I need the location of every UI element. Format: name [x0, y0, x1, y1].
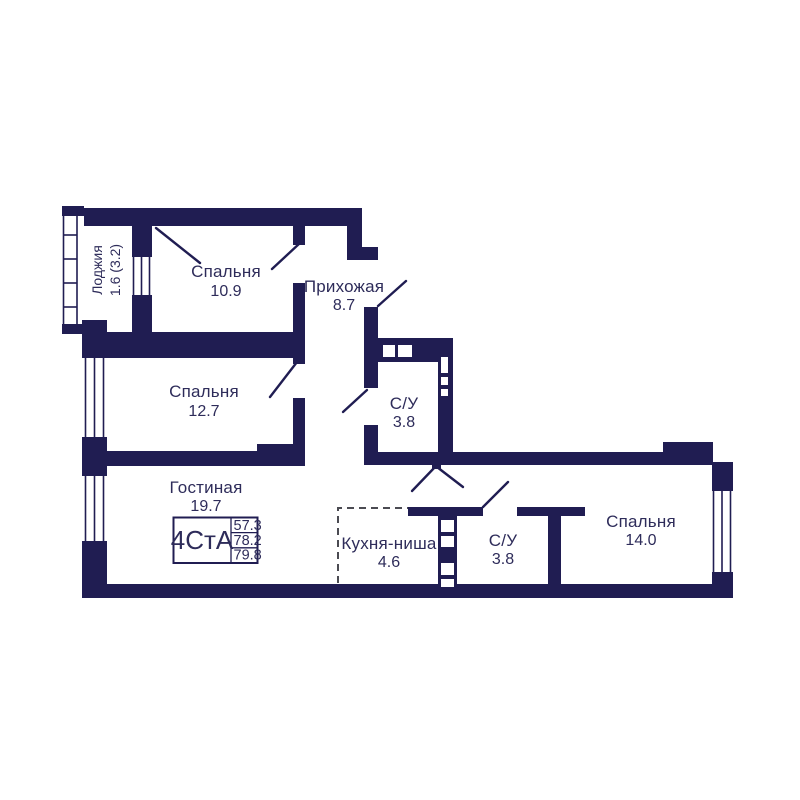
room-area: 3.8 [393, 414, 415, 431]
room-name: Спальня [169, 382, 239, 401]
wall-right-upper [712, 462, 733, 491]
glazing-cap [62, 206, 84, 216]
wall-partition-living-block [257, 444, 305, 466]
unit-type-label: 4СтА [171, 525, 234, 555]
loggia-glazing [62, 206, 84, 334]
room-label-bedroom3: Спальня 14.0 [606, 512, 676, 549]
floor-plan-page: Лоджия 1.6 (3.2) Спальня 10.9 Прихожая 8… [0, 0, 800, 800]
wall-hall-right-upper [347, 226, 362, 260]
room-area: 14.0 [625, 532, 656, 549]
window-bedroom2 [86, 357, 104, 437]
unit-info-box: 4СтА 57.3 78.2 79.8 [171, 518, 262, 564]
room-area: 12.7 [188, 403, 219, 420]
vent-square [398, 345, 412, 357]
wall-wc2-right [548, 516, 561, 584]
door-corridor-a [412, 466, 436, 491]
room-area: 4.6 [378, 554, 400, 571]
floor-plan: Лоджия 1.6 (3.2) Спальня 10.9 Прихожая 8… [0, 0, 800, 800]
unit-area-value: 57.3 [234, 518, 262, 534]
wall-bed1-right-a [293, 226, 305, 245]
door-bedroom2 [270, 362, 297, 397]
door-loggia [156, 228, 200, 263]
wall-right-lower [712, 572, 733, 598]
wall-entry-jamb [362, 247, 378, 260]
wall-loggia-partition-upper [132, 226, 152, 257]
window-living [86, 476, 104, 541]
wall-left-b [82, 437, 107, 476]
room-name: Кухня-ниша [341, 534, 436, 553]
door-bedroom1 [272, 243, 300, 269]
room-name: Спальня [606, 512, 676, 531]
room-name: Спальня [191, 262, 261, 281]
wall-top [84, 208, 362, 226]
vent-slit [441, 377, 448, 385]
room-name: Лоджия [89, 245, 105, 295]
room-label-loggia: Лоджия 1.6 (3.2) [89, 244, 123, 296]
room-label-kitchen: Кухня-ниша 4.6 [341, 534, 436, 571]
shaft-cell [441, 520, 454, 532]
wall-wc2-top-left [408, 507, 483, 516]
vent-slit [441, 357, 448, 373]
room-label-wc1: С/У 3.8 [390, 394, 418, 431]
room-name: С/У [390, 394, 418, 413]
shaft-cell [441, 563, 454, 575]
wall-wc2-top-right [517, 507, 585, 516]
wall-wc1-left-lower [364, 425, 378, 452]
room-area: 3.8 [492, 551, 514, 568]
room-area: 19.7 [190, 498, 221, 515]
wall-left-a [82, 320, 107, 358]
room-label-bedroom2: Спальня 12.7 [169, 382, 239, 420]
room-name: С/У [489, 531, 517, 550]
wall-bed2-right-b [293, 398, 305, 452]
vent-square [383, 345, 395, 357]
wall-bed3-top-thick [663, 442, 713, 465]
window-bedroom3 [714, 491, 731, 572]
wall-loggia-partition-lower [132, 295, 152, 332]
room-label-living: Гостиная 19.7 [170, 478, 243, 515]
door-wc1 [343, 390, 367, 412]
wall-bottom [82, 584, 733, 598]
wall-partition-bedrooms [84, 332, 305, 358]
vent-slit [441, 389, 448, 396]
room-area: 1.6 (3.2) [107, 244, 123, 296]
room-area: 10.9 [210, 283, 241, 300]
unit-area-value: 78.2 [234, 533, 262, 549]
room-area: 8.7 [333, 297, 355, 314]
door-wc2 [483, 482, 508, 507]
glazing-cap [62, 324, 84, 334]
unit-area-value: 79.8 [234, 547, 262, 563]
window-loggia-bedroom [134, 257, 150, 295]
room-label-bedroom1: Спальня 10.9 [191, 262, 261, 300]
room-name: Прихожая [304, 277, 384, 296]
room-name: Гостиная [170, 478, 243, 497]
shaft-cell [441, 536, 454, 547]
shaft-cell [441, 579, 454, 587]
room-label-wc2: С/У 3.8 [489, 531, 517, 568]
door-corridor-b [437, 467, 463, 487]
